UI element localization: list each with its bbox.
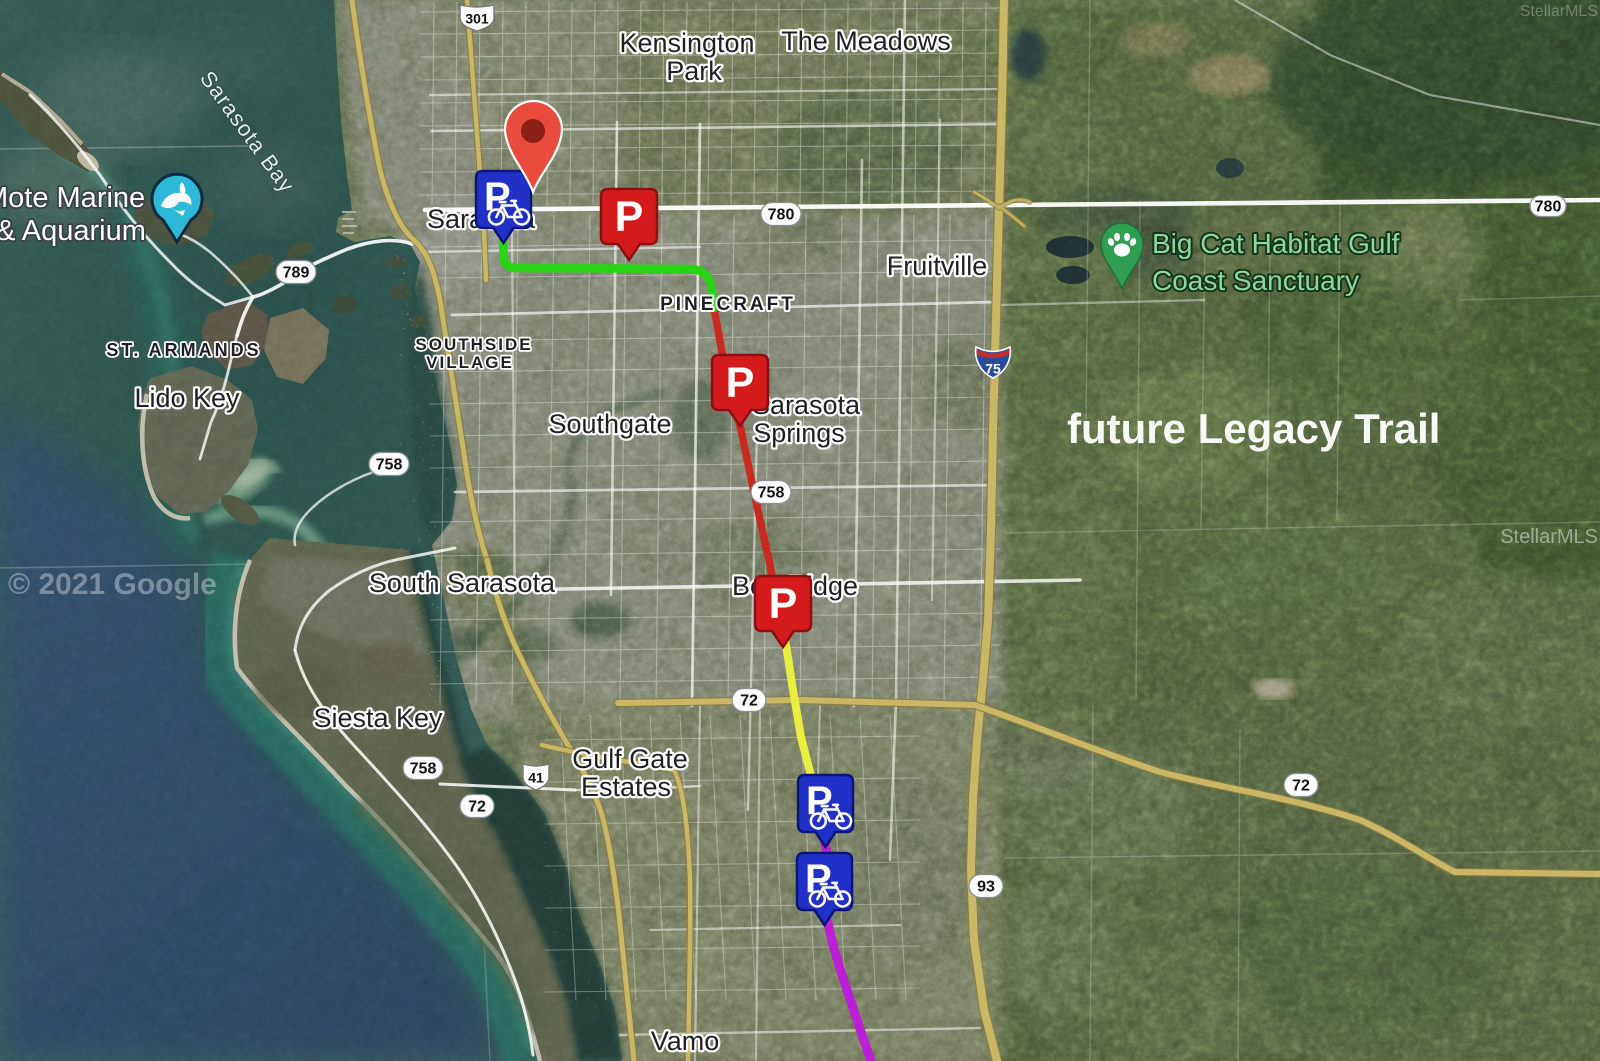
svg-text:P: P: [615, 193, 644, 241]
svg-text:72: 72: [1292, 778, 1310, 795]
svg-text:Coast Sanctuary: Coast Sanctuary: [1152, 265, 1359, 296]
svg-text:P: P: [726, 359, 755, 407]
svg-text:Park: Park: [666, 56, 722, 86]
svg-text:Lido Key: Lido Key: [134, 383, 240, 413]
svg-text:Siesta Key: Siesta Key: [313, 703, 443, 733]
svg-text:758: 758: [758, 485, 785, 502]
svg-text:Springs: Springs: [753, 418, 845, 448]
svg-text:SOUTHSIDE: SOUTHSIDE: [415, 335, 532, 354]
svg-text:& Aquarium: & Aquarium: [0, 215, 146, 247]
svg-text:758: 758: [376, 457, 403, 474]
svg-text:41: 41: [528, 770, 544, 786]
svg-text:The Meadows: The Meadows: [781, 26, 951, 56]
svg-text:Gulf Gate: Gulf Gate: [572, 744, 688, 774]
svg-text:StellarMLS: StellarMLS: [1500, 526, 1598, 548]
svg-text:© 2021 Google: © 2021 Google: [8, 568, 217, 601]
svg-text:780: 780: [768, 207, 795, 224]
svg-text:future Legacy Trail: future Legacy Trail: [1067, 405, 1440, 452]
svg-text:72: 72: [468, 799, 486, 816]
svg-text:Estates: Estates: [581, 772, 671, 802]
svg-text:Southgate: Southgate: [548, 409, 671, 439]
svg-text:VILLAGE: VILLAGE: [426, 353, 514, 372]
svg-text:South Sarasota: South Sarasota: [369, 568, 556, 598]
svg-text:789: 789: [283, 265, 310, 282]
svg-text:301: 301: [465, 11, 489, 27]
svg-text:75: 75: [985, 361, 1001, 377]
svg-text:Vamo: Vamo: [651, 1026, 720, 1056]
svg-text:PINECRAFT: PINECRAFT: [660, 294, 796, 315]
svg-text:ST. ARMANDS: ST. ARMANDS: [106, 340, 261, 360]
svg-text:93: 93: [977, 879, 995, 896]
svg-text:Mote Marine: Mote Marine: [0, 182, 145, 214]
svg-text:Fruitville: Fruitville: [887, 251, 988, 281]
svg-text:758: 758: [410, 761, 437, 778]
svg-text:P: P: [769, 580, 798, 628]
svg-text:780: 780: [1535, 199, 1562, 216]
svg-text:StellarMLS: StellarMLS: [1520, 3, 1598, 20]
svg-text:72: 72: [740, 693, 758, 710]
svg-text:Kensington: Kensington: [619, 28, 754, 58]
svg-text:Big Cat Habitat Gulf: Big Cat Habitat Gulf: [1152, 228, 1400, 259]
